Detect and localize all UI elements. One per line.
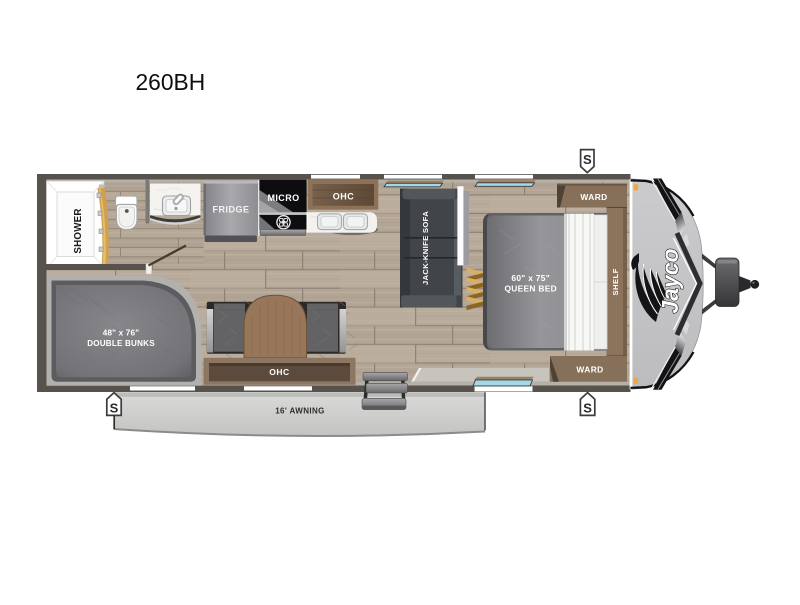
- svg-text:WARD: WARD: [576, 365, 603, 375]
- svg-text:FRIDGE: FRIDGE: [212, 205, 249, 215]
- svg-text:WARD: WARD: [580, 192, 607, 202]
- svg-text:SHELF: SHELF: [611, 268, 620, 295]
- svg-text:260BH: 260BH: [136, 69, 206, 95]
- svg-text:MICRO: MICRO: [268, 193, 300, 203]
- svg-text:QUEEN BED: QUEEN BED: [504, 284, 557, 294]
- svg-text:S: S: [110, 401, 119, 416]
- svg-text:SHOWER: SHOWER: [73, 208, 84, 253]
- svg-text:S: S: [583, 152, 592, 167]
- svg-text:DOUBLE BUNKS: DOUBLE BUNKS: [87, 339, 155, 348]
- svg-text:OHC: OHC: [333, 192, 355, 202]
- svg-text:60" x 75": 60" x 75": [511, 273, 550, 283]
- svg-text:S: S: [583, 401, 592, 416]
- svg-text:48" x 76": 48" x 76": [103, 329, 139, 338]
- svg-text:Jayco: Jayco: [657, 248, 683, 313]
- svg-text:OHC: OHC: [269, 367, 289, 377]
- svg-text:JACK-KNIFE SOFA: JACK-KNIFE SOFA: [421, 211, 430, 285]
- svg-text:16' AWNING: 16' AWNING: [275, 407, 325, 416]
